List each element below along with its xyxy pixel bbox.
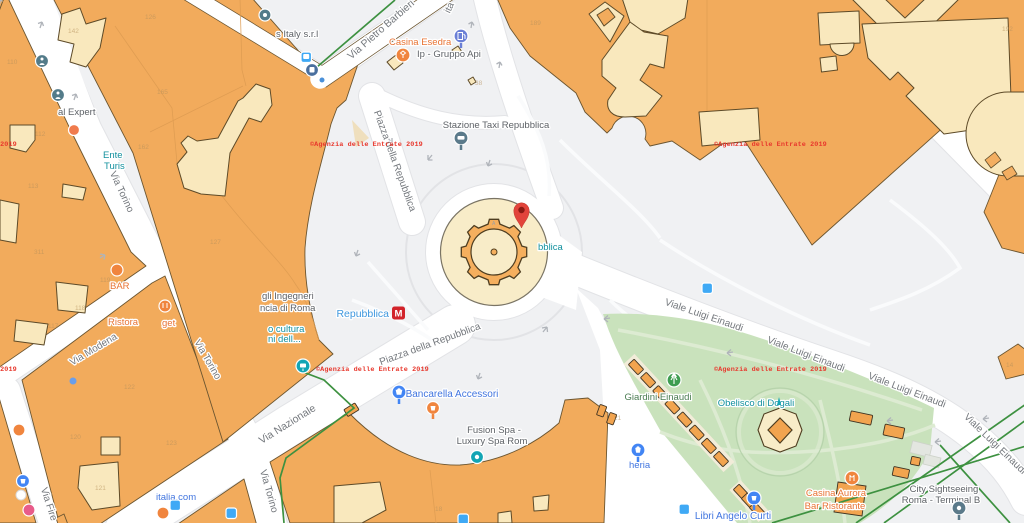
svg-text:21: 21	[614, 415, 622, 422]
svg-text:142: 142	[68, 28, 79, 35]
svg-text:©Agenzia delle Entrate 2019: ©Agenzia delle Entrate 2019	[714, 140, 827, 149]
svg-text:Fusion Spa -: Fusion Spa -	[467, 425, 521, 436]
svg-text:Casina Aurora: Casina Aurora	[806, 488, 867, 499]
svg-text:112: 112	[35, 131, 46, 138]
svg-text:162: 162	[138, 144, 149, 151]
svg-text:110: 110	[7, 59, 18, 66]
svg-text:126: 126	[145, 14, 156, 21]
svg-text:38: 38	[475, 80, 483, 87]
svg-text:©Agenzia delle Entrate 2019: ©Agenzia delle Entrate 2019	[0, 365, 17, 374]
svg-text:Obelisco di Dogali: Obelisco di Dogali	[718, 398, 795, 409]
svg-text:Libri Angelo Curti: Libri Angelo Curti	[695, 511, 771, 522]
svg-text:ncia di Roma: ncia di Roma	[260, 303, 316, 314]
svg-text:©Agenzia delle Entrate 2019: ©Agenzia delle Entrate 2019	[310, 140, 423, 149]
svg-text:©Agenzia delle Entrate 2019: ©Agenzia delle Entrate 2019	[714, 365, 827, 374]
svg-text:311: 311	[34, 249, 45, 256]
svg-text:Casina Esedra: Casina Esedra	[389, 37, 452, 48]
svg-text:121: 121	[95, 485, 106, 492]
svg-text:©Agenzia delle Entrate 2019: ©Agenzia delle Entrate 2019	[0, 140, 17, 149]
svg-text:118: 118	[75, 305, 86, 312]
svg-text:14: 14	[1006, 362, 1014, 369]
svg-text:192: 192	[1002, 26, 1013, 33]
svg-text:Giardini Einaudi: Giardini Einaudi	[624, 392, 691, 403]
svg-text:Luxury Spa Rom: Luxury Spa Rom	[457, 436, 528, 447]
svg-text:Roma - Terminal B: Roma - Terminal B	[902, 495, 981, 506]
svg-text:Bar Ristorante: Bar Ristorante	[805, 501, 866, 512]
svg-text:M: M	[395, 309, 403, 320]
svg-text:123: 123	[166, 440, 177, 447]
svg-text:Ristora: Ristora	[108, 317, 139, 328]
svg-text:Ip - Gruppo Api: Ip - Gruppo Api	[417, 49, 481, 60]
svg-text:ni dell...: ni dell...	[268, 334, 301, 345]
svg-text:©Agenzia delle Entrate 2019: ©Agenzia delle Entrate 2019	[316, 365, 429, 374]
svg-text:Turis: Turis	[104, 161, 125, 172]
svg-text:189: 189	[530, 20, 541, 27]
svg-text:gli Ingegneri: gli Ingegneri	[262, 291, 314, 302]
svg-text:al Expert: al Expert	[58, 107, 96, 118]
svg-text:heria: heria	[629, 460, 651, 471]
svg-text:18: 18	[435, 506, 443, 513]
svg-text:119: 119	[100, 277, 111, 284]
svg-text:Repubblica: Repubblica	[336, 308, 389, 320]
svg-text:165: 165	[157, 89, 168, 96]
svg-text:s Italy s.r.l: s Italy s.r.l	[276, 29, 318, 40]
svg-text:Stazione Taxi Repubblica: Stazione Taxi Repubblica	[443, 120, 550, 131]
svg-text:117: 117	[48, 323, 59, 330]
svg-text:get: get	[162, 318, 176, 329]
svg-text:Ente: Ente	[103, 150, 123, 161]
svg-text:127: 127	[210, 239, 221, 246]
svg-text:113: 113	[28, 183, 39, 190]
svg-text:Bancarella Accessori: Bancarella Accessori	[406, 389, 499, 400]
svg-text:120: 120	[70, 434, 81, 441]
svg-text:City Sightseeing: City Sightseeing	[910, 484, 979, 495]
svg-text:bblica: bblica	[538, 242, 564, 253]
svg-text:BAR: BAR	[110, 281, 130, 292]
svg-text:122: 122	[124, 384, 135, 391]
